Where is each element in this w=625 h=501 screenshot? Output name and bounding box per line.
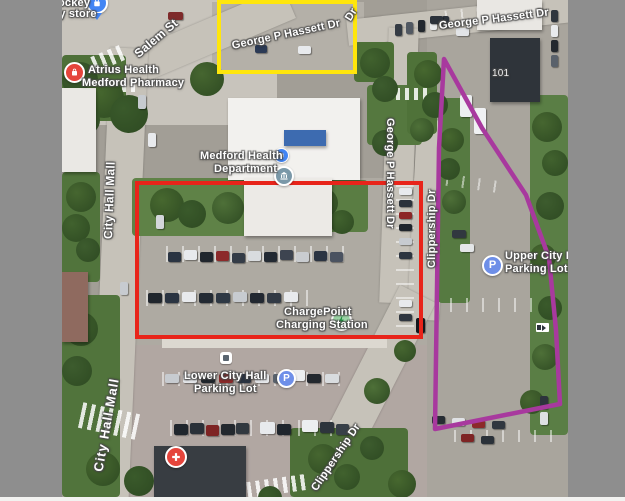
atrius-pharmacy-label[interactable]: Medford Pharmacy	[82, 77, 184, 89]
road-label-city-hall-mall-upper: City Hall Mall	[101, 161, 118, 239]
chargepoint-label[interactable]: Charging Station	[276, 319, 368, 331]
bottom-strip	[0, 497, 625, 501]
building-number-label: 101	[492, 68, 509, 79]
lower-parking-label[interactable]: Lower City Hall	[184, 370, 266, 382]
side-border-right	[568, 0, 625, 497]
parking-icon-lower[interactable]: P	[277, 369, 296, 388]
upper-parking-label[interactable]: Upper City Hall	[505, 250, 568, 262]
small-sign-icon	[536, 323, 549, 332]
road-label-clippership-vertical: Clippership Dr	[426, 189, 438, 268]
atrius-pharmacy-label[interactable]: Atrius Health	[88, 64, 159, 76]
fire-station-icon[interactable]	[165, 446, 187, 468]
parking-icon-upper[interactable]: P	[482, 255, 503, 276]
side-border-left	[0, 0, 62, 497]
parking-letter: P	[283, 374, 290, 384]
red-highlight-box	[135, 181, 423, 339]
bus-stop-icon[interactable]	[220, 352, 232, 364]
lower-parking-label[interactable]: Parking Lot	[194, 383, 257, 395]
chargepoint-label[interactable]: ChargePoint	[284, 306, 352, 318]
screenshot-stage: P P ockey ly store Salem St George P Has…	[0, 0, 625, 501]
road-label-hassett-vertical: George P Hassett Dr	[384, 118, 396, 229]
purple-route-polygon	[435, 59, 560, 429]
store-name-label[interactable]: ly store	[62, 8, 97, 20]
medford-health-label[interactable]: Department	[214, 163, 277, 175]
medford-health-label[interactable]: Medford Health	[200, 150, 283, 162]
satellite-map[interactable]: P P ockey ly store Salem St George P Has…	[62, 0, 568, 497]
upper-parking-label[interactable]: Parking Lot	[505, 263, 568, 275]
parking-letter: P	[489, 260, 496, 271]
